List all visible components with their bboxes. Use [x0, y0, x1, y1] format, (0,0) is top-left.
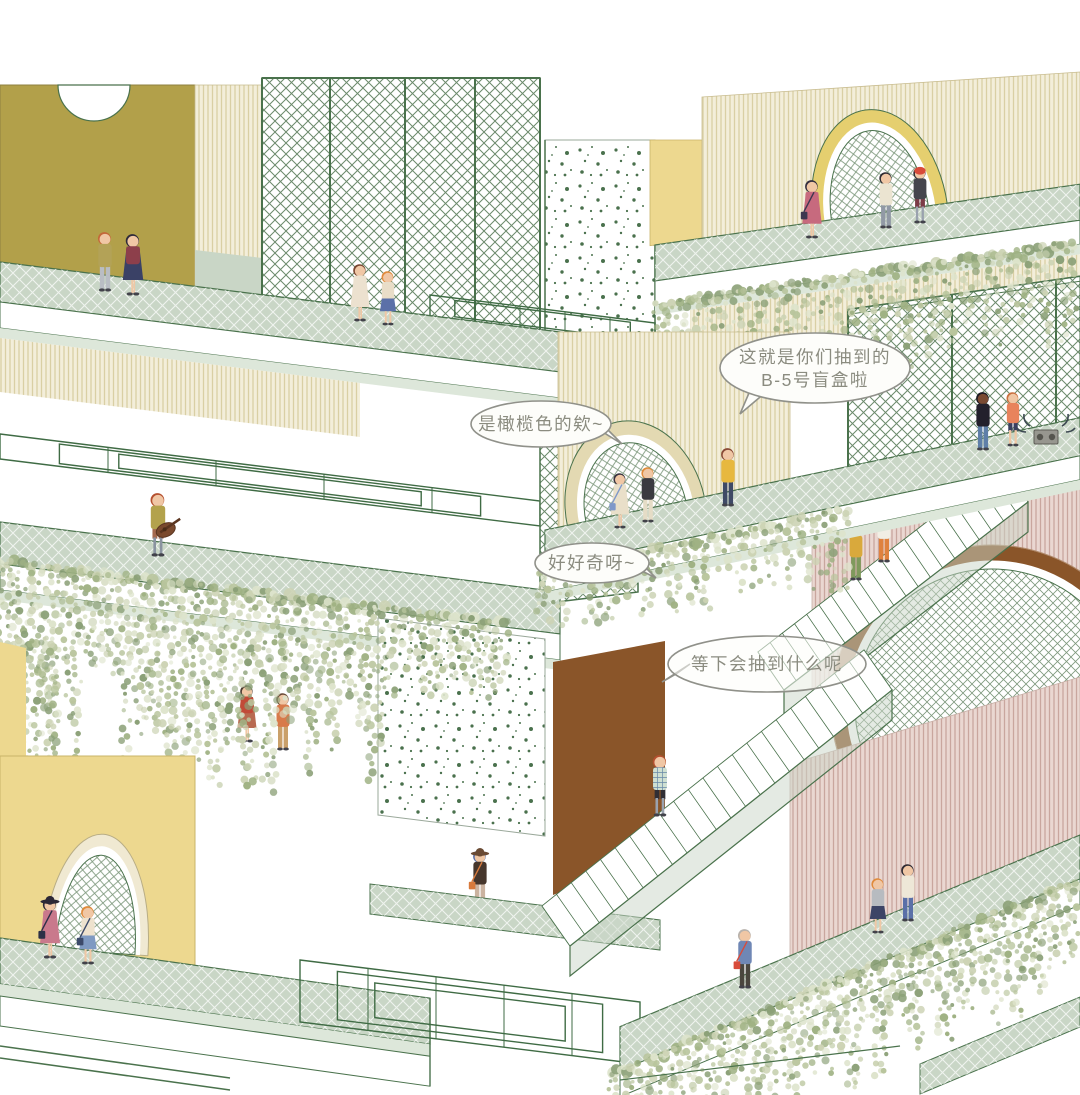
wall-mesh-screen [262, 78, 540, 330]
illustration-canvas: 这就是你们抽到的 B-5号盲盒啦 是橄榄色的欸~ 好好奇呀~ 等下会抽到什么呢 [0, 0, 1080, 1095]
speech-bubble-curious-text: 好好奇呀~ [548, 553, 636, 573]
speech-bubble-shape [720, 333, 910, 403]
walkway-bottom-left [0, 938, 430, 1086]
illustration-scene [0, 72, 1080, 1095]
wall-dotted-middle [378, 618, 545, 836]
speech-bubble-b5-line2: B-5号盲盒啦 [761, 370, 869, 390]
wall-yellow-patch [650, 140, 702, 246]
speech-bubble-wonder: 等下会抽到什么呢 [662, 636, 866, 692]
ceiling-grid-middle [0, 434, 540, 526]
wall-butter-sliver [0, 642, 26, 772]
axonometric-scene: 这就是你们抽到的 B-5号盲盒啦 是橄榄色的欸~ 好好奇呀~ 等下会抽到什么呢 [0, 0, 1080, 1095]
wall-cream-top-left [195, 85, 262, 295]
speech-bubble-olive-text: 是橄榄色的欸~ [478, 414, 604, 434]
speech-bubble-b5-line1: 这就是你们抽到的 [739, 347, 891, 367]
speech-bubble-wonder-text: 等下会抽到什么呢 [691, 654, 843, 674]
